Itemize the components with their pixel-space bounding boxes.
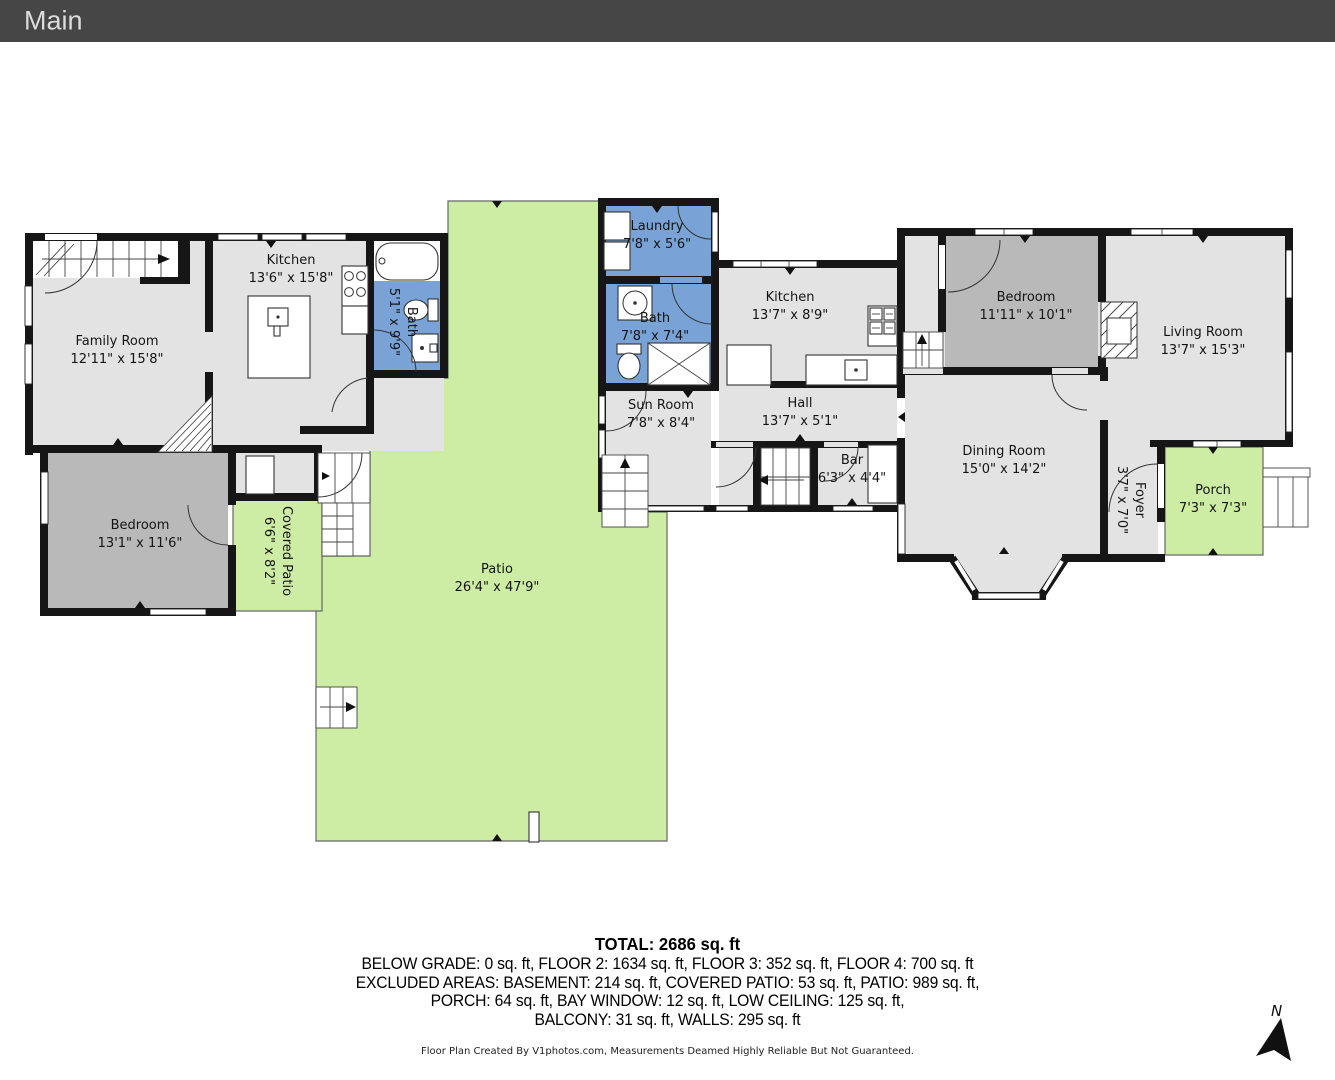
summary-line-floors: BELOW GRADE: 0 sq. ft, FLOOR 2: 1634 sq.… bbox=[33, 955, 1301, 974]
summary-total: TOTAL: 2686 sq. ft bbox=[33, 934, 1301, 955]
bathtub-icon bbox=[376, 243, 438, 280]
room-label-living-room: Living Room 13'7" x 15'3" bbox=[1161, 324, 1246, 360]
kitchen-island-icon bbox=[248, 296, 310, 378]
room-label-kitchen-middle: Kitchen 13'7" x 8'9" bbox=[752, 289, 828, 325]
north-label: N bbox=[1271, 1002, 1282, 1020]
room-label-family-room: Family Room 12'11" x 15'8" bbox=[71, 333, 164, 369]
fridge-icon bbox=[727, 345, 771, 385]
room-label-bath-middle: Bath 7'8" x 7'4" bbox=[621, 310, 689, 346]
oven-right-icon bbox=[868, 306, 897, 346]
credit-line: Floor Plan Created By V1photos.com, Meas… bbox=[0, 1046, 1335, 1057]
room-label-patio: Patio 26'4" x 47'9" bbox=[455, 561, 540, 597]
room-label-sun-room: Sun Room 7'8" x 8'4" bbox=[627, 397, 695, 433]
room-label-porch: Porch 7'3" x 7'3" bbox=[1179, 482, 1247, 518]
floor-plan-page: Main bbox=[0, 0, 1335, 1080]
room-label-bedroom-right: Bedroom 11'11" x 10'1" bbox=[980, 289, 1073, 325]
room-label-bath-left: Bath 5'1" x 9'9" bbox=[384, 288, 420, 356]
patio-stairs-icon bbox=[316, 687, 357, 728]
staircase-landing-icon bbox=[318, 453, 370, 556]
room-label-kitchen-left: Kitchen 13'6" x 15'8" bbox=[249, 252, 334, 288]
patio-gate-icon bbox=[529, 812, 539, 842]
room-label-dining-room: Dining Room 15'0" x 14'2" bbox=[962, 443, 1047, 479]
closet-stairs-icon bbox=[903, 332, 943, 368]
kitchen-middle-counter-icon bbox=[806, 355, 897, 385]
bath-middle-toilet-icon bbox=[617, 344, 641, 379]
floor-plan-drawing bbox=[0, 0, 1335, 1080]
room-label-bar: Bar 6'3" x 4'4" bbox=[818, 452, 886, 488]
sunroom-stairs-icon bbox=[602, 455, 648, 527]
room-label-laundry: Laundry 7'8" x 5'6" bbox=[623, 218, 691, 254]
shower-icon bbox=[648, 343, 710, 385]
utility-box-icon bbox=[246, 456, 274, 494]
summary-line-balcony: BALCONY: 31 sq. ft, WALLS: 295 sq. ft bbox=[33, 1011, 1301, 1030]
room-label-covered-patio: Covered Patio 6'6" x 8'2" bbox=[259, 506, 295, 596]
fireplace-icon bbox=[1101, 302, 1137, 358]
room-label-bedroom-left: Bedroom 13'1" x 11'6" bbox=[98, 517, 183, 553]
summary-line-excluded: EXCLUDED AREAS: BASEMENT: 214 sq. ft, CO… bbox=[33, 974, 1301, 993]
stove-icon bbox=[342, 266, 368, 334]
area-summary: TOTAL: 2686 sq. ft BELOW GRADE: 0 sq. ft… bbox=[33, 934, 1301, 1029]
room-label-foyer: Foyer 3'7" x 7'0" bbox=[1112, 466, 1148, 534]
porch-steps-icon bbox=[1263, 468, 1310, 527]
room-label-hall: Hall 13'7" x 5'1" bbox=[762, 395, 838, 431]
summary-line-porch: PORCH: 64 sq. ft, BAY WINDOW: 12 sq. ft,… bbox=[33, 992, 1301, 1011]
central-staircase-icon bbox=[758, 448, 810, 505]
